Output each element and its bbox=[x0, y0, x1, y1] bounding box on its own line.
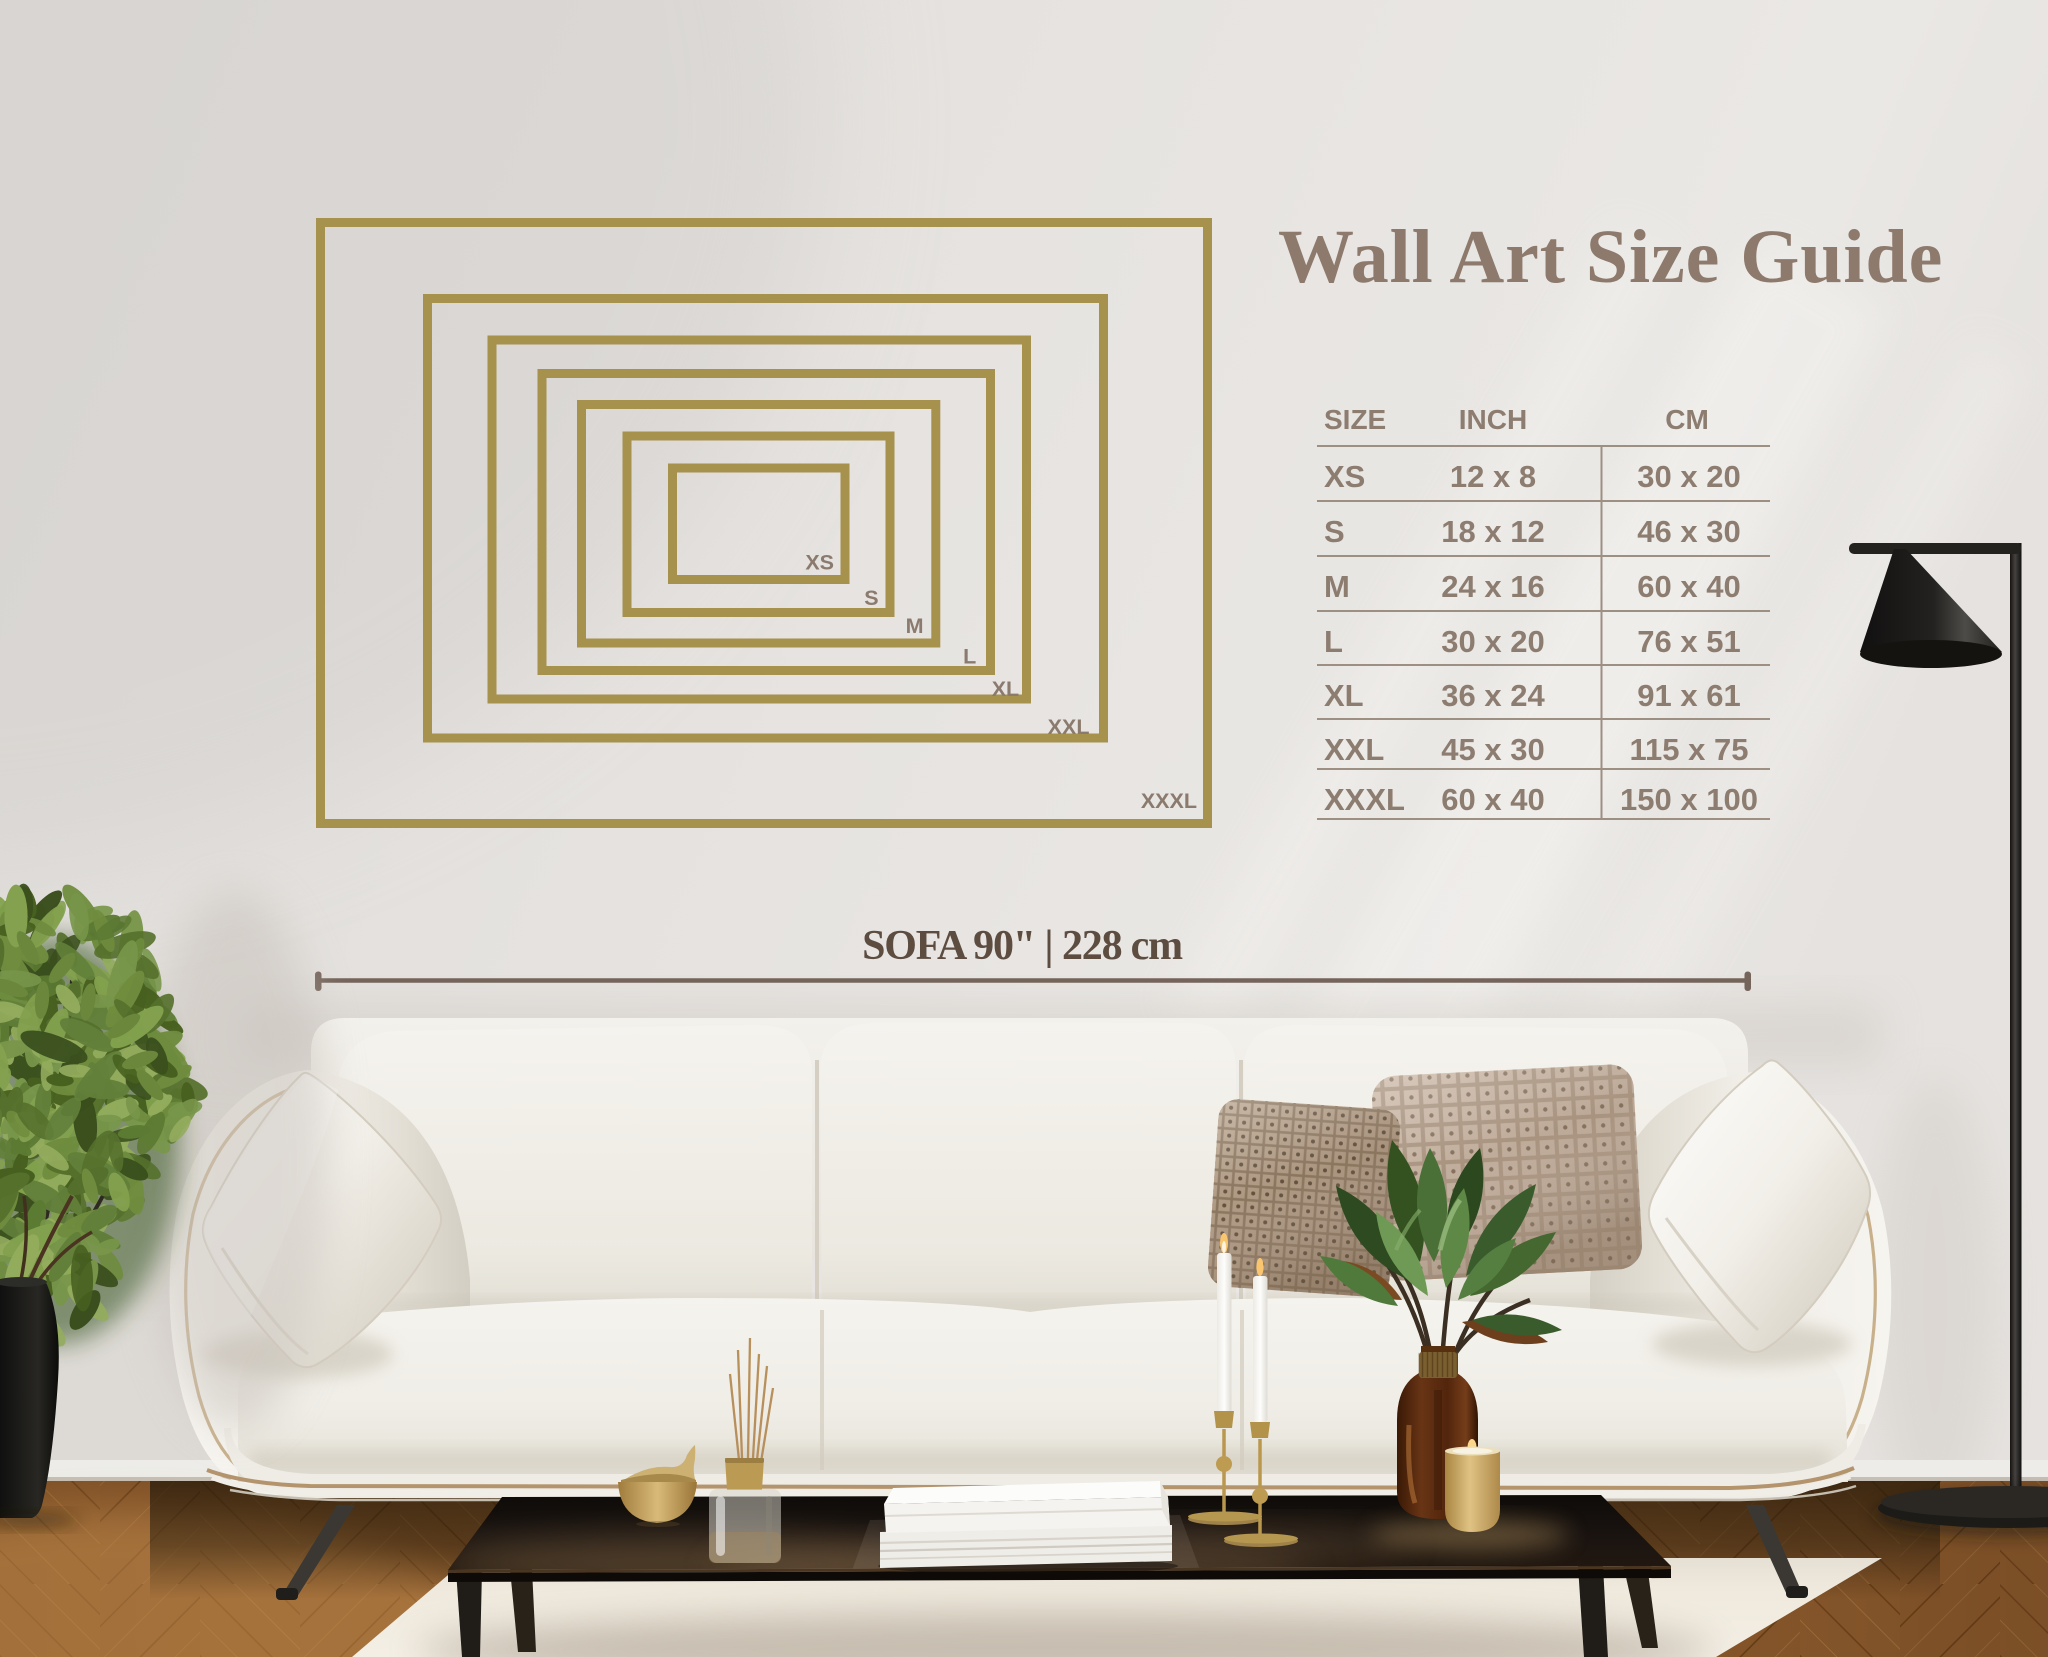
svg-text:XXXL: XXXL bbox=[1324, 782, 1405, 817]
svg-text:18 x 12: 18 x 12 bbox=[1441, 514, 1544, 549]
svg-text:S: S bbox=[1324, 514, 1345, 549]
svg-text:XL: XL bbox=[1324, 678, 1364, 713]
svg-text:76 x 51: 76 x 51 bbox=[1637, 624, 1740, 659]
svg-text:12 x 8: 12 x 8 bbox=[1450, 459, 1536, 494]
svg-text:XXXL: XXXL bbox=[1141, 789, 1197, 813]
svg-text:L: L bbox=[1324, 624, 1343, 659]
svg-text:SOFA 90" | 228 cm: SOFA 90" | 228 cm bbox=[862, 923, 1183, 969]
svg-text:INCH: INCH bbox=[1459, 404, 1527, 435]
svg-text:Wall Art Size Guide: Wall Art Size Guide bbox=[1278, 215, 1943, 299]
svg-text:M: M bbox=[1324, 569, 1350, 604]
svg-text:XS: XS bbox=[805, 551, 834, 575]
svg-text:91 x 61: 91 x 61 bbox=[1637, 678, 1740, 713]
svg-text:46 x 30: 46 x 30 bbox=[1637, 514, 1740, 549]
svg-text:XXL: XXL bbox=[1324, 732, 1384, 767]
svg-text:L: L bbox=[963, 645, 976, 669]
svg-text:30 x 20: 30 x 20 bbox=[1637, 459, 1740, 494]
svg-text:SIZE: SIZE bbox=[1324, 404, 1386, 435]
svg-text:60 x 40: 60 x 40 bbox=[1637, 569, 1740, 604]
svg-text:115 x 75: 115 x 75 bbox=[1630, 732, 1749, 767]
svg-text:XXL: XXL bbox=[1048, 715, 1090, 739]
svg-text:30 x 20: 30 x 20 bbox=[1441, 624, 1544, 659]
svg-text:M: M bbox=[906, 614, 924, 638]
svg-text:S: S bbox=[864, 586, 878, 610]
svg-text:36 x 24: 36 x 24 bbox=[1441, 678, 1545, 713]
svg-text:XL: XL bbox=[992, 677, 1019, 701]
svg-text:XS: XS bbox=[1324, 459, 1365, 494]
svg-text:24 x 16: 24 x 16 bbox=[1441, 569, 1544, 604]
svg-text:CM: CM bbox=[1665, 404, 1709, 435]
svg-text:45 x 30: 45 x 30 bbox=[1441, 732, 1544, 767]
svg-text:60 x 40: 60 x 40 bbox=[1441, 782, 1544, 817]
svg-text:150 x 100: 150 x 100 bbox=[1620, 782, 1758, 817]
